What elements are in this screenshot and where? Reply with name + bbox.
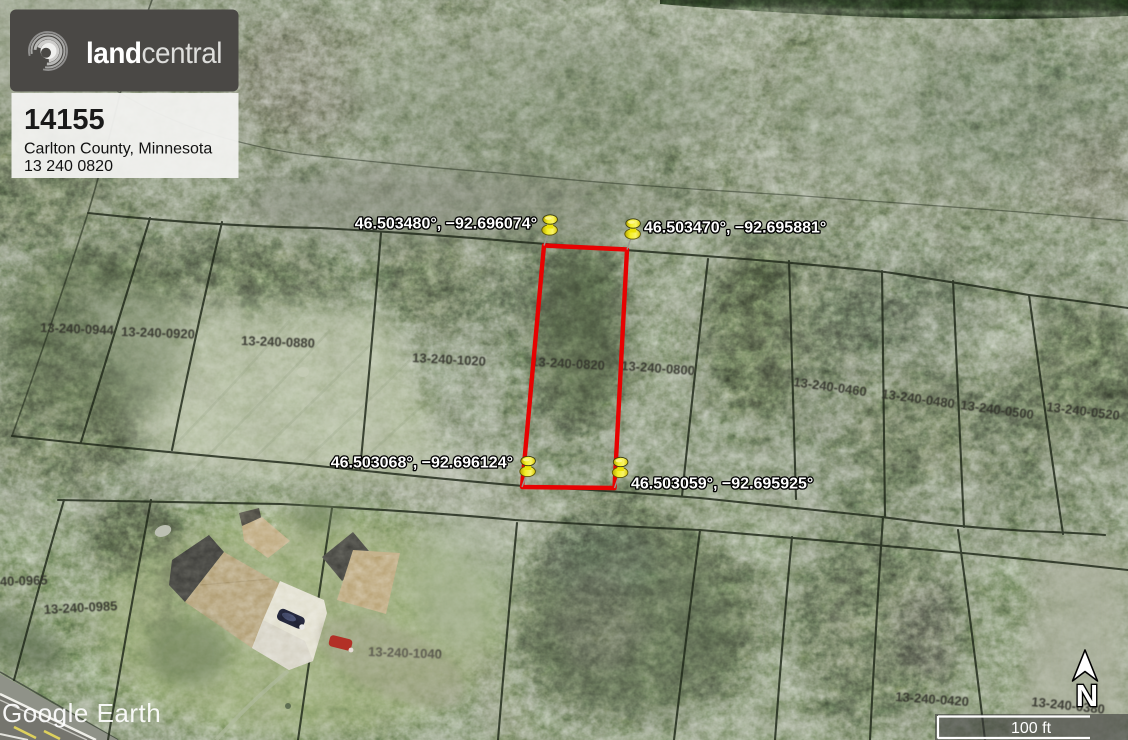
svg-text:Google Earth: Google Earth [2,698,161,728]
svg-text:Carlton County, Minnesota: Carlton County, Minnesota [24,141,212,158]
svg-text:40-0965: 40-0965 [0,572,48,589]
svg-text:46.503480°, −92.696074°: 46.503480°, −92.696074° [355,216,537,233]
svg-text:14155: 14155 [24,104,105,136]
svg-text:13 240 0820: 13 240 0820 [24,158,113,175]
svg-text:46.503059°, −92.695925°: 46.503059°, −92.695925° [631,476,813,493]
svg-text:13-240-0920: 13-240-0920 [121,324,195,342]
svg-text:N: N [1076,678,1098,713]
svg-text:100 ft: 100 ft [1011,720,1052,737]
svg-text:46.503470°, −92.695881°: 46.503470°, −92.695881° [644,220,826,237]
svg-text:46.503068°, −92.696124°: 46.503068°, −92.696124° [331,455,513,472]
svg-text:landcentral: landcentral [86,37,222,70]
svg-text:13-240-0944: 13-240-0944 [40,320,115,338]
svg-text:13-240-0880: 13-240-0880 [241,333,315,351]
